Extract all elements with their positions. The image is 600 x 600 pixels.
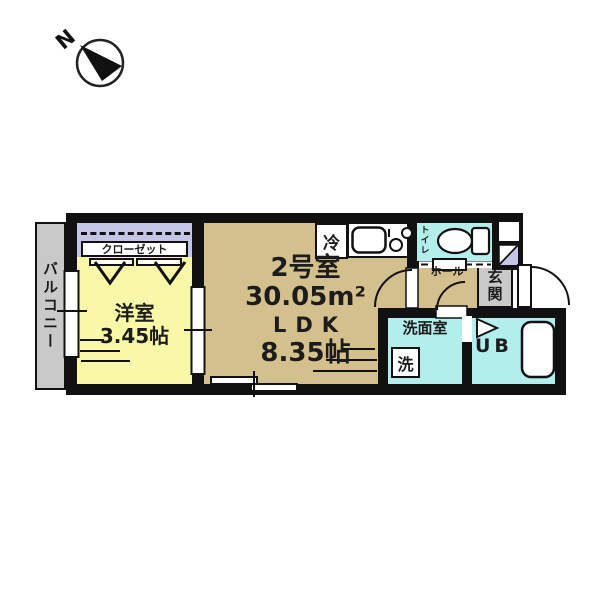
bottom-window-icon [211,371,297,397]
hall-label: ホール [417,266,477,278]
main-room-area: 30.05m² [204,284,407,311]
toilet-fixture-icon [438,228,489,254]
shoe-cabinet-icon [499,245,518,265]
closet-chevron-right-icon [155,262,185,283]
main-room-size: 8.35帖 [204,340,407,367]
floorplan-canvas: N バルコニー 玄関 冷 洗 クローゼット [0,0,600,600]
bathtub-icon [522,322,554,377]
western-room-size: 3.45帖 [77,326,192,347]
unit-bath-label: UB [475,337,513,357]
main-room-number: 2号室 [204,255,407,282]
main-room-layout: LDK [204,314,407,336]
kitchen-counter-icon [348,223,412,257]
closet-chevron-left-icon [95,262,125,283]
washroom-door-icon [436,282,467,318]
entrance-door-icon [518,265,569,307]
western-room-label: 洋室 [77,303,192,324]
toilet-label: トイレ [418,225,427,261]
washroom-label: 洗面室 [388,321,462,337]
